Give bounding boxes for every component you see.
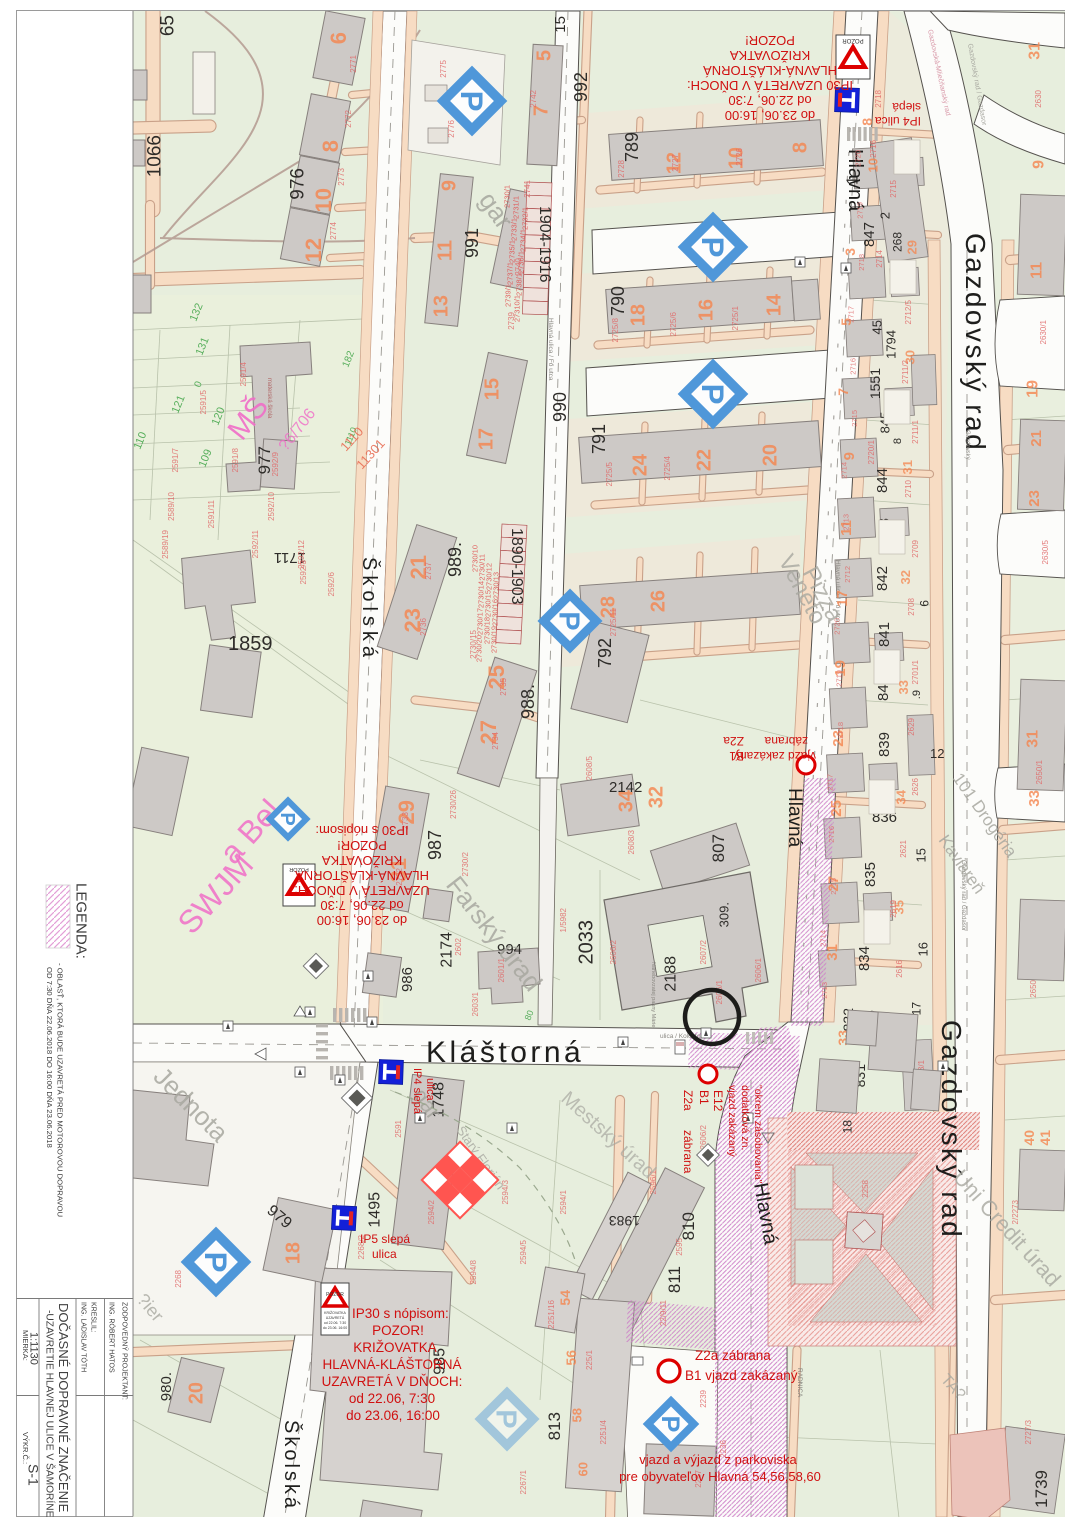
- svg-text:2258: 2258: [861, 1179, 870, 1197]
- svg-text:807: 807: [709, 834, 728, 862]
- svg-text:2710: 2710: [904, 479, 913, 497]
- svg-text:P: P: [490, 1409, 522, 1428]
- svg-text:2626: 2626: [911, 777, 920, 795]
- svg-text:792: 792: [595, 638, 615, 668]
- svg-text:1983: 1983: [609, 1213, 640, 1229]
- svg-text:vjazd zakázaný: vjazd zakázaný: [726, 1085, 738, 1158]
- svg-text:65: 65: [158, 15, 179, 36]
- svg-text:811: 811: [665, 1266, 684, 1293]
- svg-text:2630: 2630: [1034, 89, 1043, 107]
- svg-text:2717: 2717: [847, 306, 856, 323]
- svg-text:2251/4: 2251/4: [599, 1419, 608, 1444]
- svg-text:2742: 2742: [529, 89, 538, 107]
- svg-text:1890-1903: 1890-1903: [508, 528, 525, 605]
- svg-text:Z2a: Z2a: [723, 734, 744, 748]
- svg-text:2776: 2776: [447, 119, 456, 137]
- svg-text:22/9/11: 22/9/11: [659, 1299, 668, 1326]
- svg-text:2772: 2772: [344, 109, 353, 127]
- svg-text:slepá: slepá: [892, 100, 921, 114]
- svg-text:839: 839: [876, 732, 893, 757]
- svg-text:10: 10: [865, 158, 880, 172]
- svg-text:2594/8: 2594/8: [469, 1259, 478, 1284]
- svg-text:Školská: Školská: [358, 557, 381, 662]
- svg-text:309.: 309.: [716, 902, 731, 927]
- svg-text:986: 986: [399, 967, 416, 992]
- svg-text:789: 789: [622, 132, 642, 162]
- svg-text:pre obyvateľov Hlavná 54,56,58: pre obyvateľov Hlavná 54,56,58,60: [619, 1469, 821, 1484]
- svg-text:od 22.06. 7:30: od 22.06. 7:30: [324, 1321, 346, 1325]
- svg-text:2608/5: 2608/5: [585, 755, 594, 780]
- svg-text:10: 10: [311, 188, 336, 212]
- svg-text:18: 18: [841, 1120, 855, 1134]
- svg-text:ING. RÓBERT HATOS: ING. RÓBERT HATOS: [108, 1302, 117, 1373]
- svg-text:zábrana: zábrana: [764, 734, 808, 748]
- svg-text:2629: 2629: [907, 717, 916, 735]
- svg-text:2033: 2033: [575, 920, 597, 965]
- svg-text:2239: 2239: [699, 1389, 708, 1407]
- svg-text:2725/8: 2725/8: [611, 317, 620, 342]
- svg-text:2650/1: 2650/1: [1035, 759, 1044, 784]
- svg-text:2732/1: 2732/1: [520, 207, 529, 230]
- svg-text:22: 22: [693, 449, 715, 471]
- svg-text:29: 29: [905, 240, 920, 254]
- svg-text:1904-1916: 1904-1916: [536, 206, 553, 283]
- svg-text:B1 vjazd zakázaný: B1 vjazd zakázaný: [685, 1368, 798, 1383]
- svg-text:2736: 2736: [419, 617, 428, 635]
- svg-text:od 22.06, 7:30: od 22.06, 7:30: [728, 93, 811, 108]
- svg-text:UZAVRETÁ V DŇOCH:: UZAVRETÁ V DŇOCH:: [294, 883, 430, 898]
- svg-text:do 23.06. 16:00: do 23.06. 16:00: [323, 1326, 347, 1330]
- svg-text:P: P: [656, 1416, 684, 1433]
- svg-text:2741: 2741: [523, 179, 532, 197]
- svg-text:60: 60: [575, 1462, 590, 1476]
- svg-text:2716: 2716: [827, 826, 836, 843]
- svg-text:2715: 2715: [889, 179, 898, 197]
- svg-text:18: 18: [282, 1242, 304, 1264]
- svg-text:P: P: [276, 812, 298, 825]
- svg-text:2592/11: 2592/11: [251, 529, 260, 558]
- svg-text:8: 8: [892, 438, 904, 444]
- svg-text:POZOR!: POZOR!: [372, 1323, 424, 1338]
- svg-text:842: 842: [874, 566, 891, 591]
- svg-text:2188: 2188: [663, 956, 680, 992]
- svg-text:2738/1: 2738/1: [514, 273, 523, 296]
- svg-text:do 23.06, 16:00: do 23.06, 16:00: [317, 913, 407, 928]
- svg-text:2251/16: 2251/16: [547, 1299, 556, 1328]
- svg-text:P: P: [553, 611, 585, 630]
- svg-text:15: 15: [481, 378, 503, 400]
- svg-text:12: 12: [930, 746, 944, 761]
- svg-text:2591/8: 2591/8: [231, 447, 240, 472]
- svg-text:.9: .9: [911, 690, 923, 699]
- svg-text:POZOR!: POZOR!: [745, 33, 795, 48]
- svg-text:9: 9: [438, 180, 460, 191]
- svg-text:2734: 2734: [491, 731, 500, 749]
- svg-text:P: P: [198, 1252, 233, 1273]
- svg-text:2268: 2268: [174, 1269, 183, 1287]
- svg-text:Z2a zábrana: Z2a zábrana: [695, 1348, 771, 1363]
- svg-text:2621: 2621: [899, 839, 908, 857]
- svg-text:24: 24: [629, 453, 651, 476]
- svg-text:OD 7:30 DŇA 22.06.2018 DO 16:: OD 7:30 DŇA 22.06.2018 DO 16:00 DŇA 23.0…: [45, 967, 54, 1148]
- svg-text:20: 20: [759, 444, 781, 466]
- svg-text:2608/3: 2608/3: [627, 829, 636, 854]
- svg-text:2730/16: 2730/16: [490, 599, 499, 626]
- svg-text:2727: 2727: [671, 153, 680, 171]
- svg-text:2714: 2714: [840, 462, 849, 479]
- svg-text:19: 19: [1025, 380, 1042, 398]
- svg-text:POZOR!: POZOR!: [337, 838, 387, 853]
- svg-text:P: P: [695, 384, 730, 405]
- svg-text:34: 34: [615, 789, 637, 812]
- svg-text:HLAVNÁ-KLÁŠTORNÁ: HLAVNÁ-KLÁŠTORNÁ: [322, 1357, 461, 1372]
- svg-text:16: 16: [915, 942, 930, 956]
- svg-text:17: 17: [910, 1002, 924, 1016]
- svg-text:834: 834: [856, 946, 873, 971]
- svg-text:13: 13: [430, 295, 452, 317]
- svg-text:dodatková zn.: dodatková zn.: [739, 1085, 751, 1150]
- svg-text:31: 31: [900, 460, 915, 474]
- svg-text:do 23.06, 16:00: do 23.06, 16:00: [346, 1408, 440, 1423]
- svg-text:2739/1: 2739/1: [503, 284, 512, 307]
- svg-text:2602: 2602: [454, 937, 463, 955]
- svg-text:2717: 2717: [826, 774, 835, 791]
- svg-text:2267/1: 2267/1: [519, 1469, 528, 1494]
- svg-text:1794: 1794: [883, 330, 898, 359]
- svg-text:2603/1: 2603/1: [471, 991, 480, 1016]
- svg-text:2713: 2713: [841, 514, 850, 531]
- svg-text:-UZAVRETIE HLAVNEJ ULICE V ŠAM: -UZAVRETIE HLAVNEJ ULICE V ŠAMORÍNE: [44, 1310, 57, 1518]
- svg-text:2616: 2616: [895, 959, 904, 977]
- svg-text:17: 17: [475, 428, 497, 450]
- svg-text:2592/10: 2592/10: [267, 491, 276, 520]
- svg-text:34: 34: [894, 789, 909, 804]
- svg-text:2716: 2716: [848, 358, 857, 375]
- svg-text:2775: 2775: [439, 59, 448, 77]
- svg-text:25: 25: [828, 800, 845, 817]
- svg-text:2730/20: 2730/20: [474, 635, 483, 662]
- svg-text:E12: E12: [711, 1090, 725, 1112]
- svg-text:21: 21: [1028, 430, 1045, 447]
- svg-text:2715: 2715: [850, 410, 859, 427]
- svg-text:2594/2: 2594/2: [427, 1199, 436, 1224]
- svg-text:8: 8: [859, 118, 875, 126]
- svg-text:DOČASNÉ DOPRAVNÉ ZNAČENIE: DOČASNÉ DOPRAVNÉ ZNAČENIE: [56, 1303, 71, 1513]
- svg-text:2591/4: 2591/4: [239, 361, 248, 386]
- svg-text:225/1: 225/1: [585, 1349, 594, 1370]
- svg-text:2: 2: [877, 212, 892, 219]
- svg-text:988.: 988.: [518, 684, 538, 719]
- svg-text:2712: 2712: [843, 566, 852, 583]
- svg-text:992: 992: [571, 72, 591, 102]
- svg-text:990: 990: [550, 392, 570, 422]
- svg-text:1066: 1066: [145, 135, 166, 177]
- svg-text:2594/5: 2594/5: [519, 1239, 528, 1264]
- svg-text:UZAVRETÁ: UZAVRETÁ: [326, 1316, 345, 1320]
- svg-text:791: 791: [589, 424, 609, 454]
- svg-text:31: 31: [1027, 42, 1044, 60]
- svg-text:987: 987: [425, 830, 445, 860]
- svg-text:Z2a: Z2a: [681, 1090, 695, 1111]
- svg-text:2630/1: 2630/1: [1039, 319, 1048, 344]
- svg-text:2720/1: 2720/1: [867, 439, 876, 464]
- svg-text:2715: 2715: [829, 878, 838, 895]
- svg-text:IP4 slepá: IP4 slepá: [411, 1068, 423, 1115]
- svg-text:33: 33: [896, 680, 911, 694]
- svg-text:1739: 1739: [1032, 1470, 1051, 1508]
- svg-text:2619: 2619: [889, 899, 898, 917]
- svg-text:2711/1: 2711/1: [911, 419, 920, 443]
- svg-text:2718: 2718: [857, 254, 866, 271]
- svg-text:ZODPOVEDNÝ PROJEKTANT:: ZODPOVEDNÝ PROJEKTANT:: [121, 1302, 130, 1400]
- svg-text:2735/1: 2735/1: [507, 240, 516, 263]
- svg-text:2709: 2709: [911, 539, 920, 557]
- svg-text:ulica: ulica: [372, 1247, 397, 1261]
- svg-text:841: 841: [876, 622, 893, 647]
- svg-text:2714: 2714: [819, 930, 828, 947]
- svg-text:32: 32: [645, 786, 667, 808]
- svg-text:KRIŽOVATKA: KRIŽOVATKA: [729, 48, 810, 63]
- svg-text:2606/1: 2606/1: [754, 957, 763, 982]
- svg-text:2774: 2774: [329, 221, 338, 239]
- svg-text:S-1: S-1: [26, 1464, 42, 1486]
- svg-text:HLAVNÁ-KLÁŠTORNÁ: HLAVNÁ-KLÁŠTORNÁ: [295, 868, 429, 883]
- svg-text:2607/2: 2607/2: [699, 939, 708, 964]
- svg-text:Kláštorná: Kláštorná: [426, 1036, 584, 1069]
- svg-text:790: 790: [608, 286, 628, 316]
- svg-text:26: 26: [647, 590, 669, 612]
- svg-text:2726: 2726: [735, 147, 744, 165]
- svg-text:835: 835: [862, 862, 879, 887]
- svg-text:14: 14: [763, 293, 785, 316]
- svg-text:7: 7: [835, 388, 851, 396]
- svg-text:vjazd zakázaný: vjazd zakázaný: [734, 749, 816, 763]
- svg-text:2589/10: 2589/10: [167, 491, 176, 520]
- svg-text:2720: 2720: [854, 150, 863, 167]
- svg-text:41: 41: [1037, 1130, 1053, 1146]
- svg-text:5: 5: [533, 50, 555, 61]
- svg-text:2730/26: 2730/26: [449, 789, 458, 818]
- svg-text:2734/1: 2734/1: [518, 229, 527, 252]
- svg-text:IP30 UZAVRETÁ V DŇOCH:: IP30 UZAVRETÁ V DŇOCH:: [687, 78, 853, 93]
- svg-text:materská škola: materská škola: [266, 378, 272, 419]
- svg-text:2594/1: 2594/1: [559, 1189, 568, 1214]
- svg-text:2719: 2719: [834, 670, 843, 687]
- svg-text:2592/3: 2592/3: [299, 559, 308, 584]
- svg-text:2728: 2728: [617, 159, 626, 177]
- svg-text:do 23.06, 16:00: do 23.06, 16:00: [725, 108, 815, 123]
- svg-text:ING. LADISLAV TÓTH: ING. LADISLAV TÓTH: [80, 1302, 89, 1372]
- svg-text:20: 20: [185, 1382, 207, 1404]
- svg-text:2737: 2737: [424, 561, 433, 579]
- svg-text:976: 976: [288, 168, 309, 200]
- svg-text:Gazdovský rad: Gazdovský rad: [960, 233, 991, 452]
- svg-text:KRIŽOVATKA: KRIŽOVATKA: [353, 1340, 437, 1355]
- svg-text:989.: 989.: [445, 542, 465, 577]
- svg-text:2591/7: 2591/7: [171, 447, 180, 472]
- svg-text:40: 40: [1021, 1130, 1037, 1146]
- svg-text:2595: 2595: [675, 1237, 684, 1255]
- svg-text:UZAVRETÁ V DŇOCH:: UZAVRETÁ V DŇOCH:: [322, 1374, 463, 1389]
- svg-text:VÝKR.Č.:: VÝKR.Č.:: [21, 1432, 30, 1464]
- svg-text:1:1130: 1:1130: [28, 1332, 40, 1365]
- svg-text:P: P: [695, 237, 730, 258]
- svg-text:Hlavná: Hlavná: [784, 788, 805, 848]
- svg-text:11: 11: [1029, 262, 1046, 279]
- svg-text:2725/6: 2725/6: [669, 311, 678, 336]
- svg-text:2630/5: 2630/5: [1041, 539, 1050, 564]
- svg-text:2725/1: 2725/1: [731, 305, 740, 330]
- svg-text:vjazd a výjazd z parkoviska: vjazd a výjazd z parkoviska: [639, 1452, 797, 1467]
- svg-text:2708: 2708: [907, 597, 916, 615]
- svg-text:P: P: [454, 91, 489, 112]
- svg-text:IP30 s nópisom:: IP30 s nópisom:: [352, 1306, 449, 1321]
- svg-text:11: 11: [434, 240, 456, 261]
- svg-text:B1: B1: [729, 749, 744, 763]
- svg-text:Školská: Školská: [280, 1420, 303, 1511]
- svg-text:KRIŽOVATKA: KRIŽOVATKA: [321, 853, 402, 868]
- svg-text:6: 6: [918, 600, 932, 607]
- svg-text:58: 58: [569, 1408, 584, 1422]
- svg-text:2592/6: 2592/6: [327, 571, 336, 596]
- svg-text:2771: 2771: [349, 54, 358, 72]
- svg-text:1551: 1551: [867, 368, 883, 399]
- svg-text:8: 8: [318, 140, 343, 152]
- svg-text:2735: 2735: [499, 677, 508, 695]
- svg-text:2713: 2713: [820, 982, 829, 999]
- svg-text:zábrana: zábrana: [681, 1130, 695, 1174]
- svg-text:2591: 2591: [394, 1119, 403, 1137]
- svg-text:POZOR: POZOR: [842, 37, 864, 43]
- svg-text:27310/1: 27310/1: [512, 295, 521, 322]
- svg-text:6: 6: [326, 32, 351, 44]
- svg-text:31: 31: [1025, 730, 1042, 748]
- svg-text:2650: 2650: [1029, 979, 1038, 997]
- svg-text:2736/1: 2736/1: [516, 251, 525, 274]
- svg-text:ulica: ulica: [424, 1078, 436, 1102]
- svg-text:9: 9: [1031, 160, 1048, 169]
- svg-text:2606/2: 2606/2: [609, 939, 618, 964]
- svg-text:2716: 2716: [869, 139, 878, 157]
- svg-text:45: 45: [869, 320, 884, 334]
- svg-text:2730/13: 2730/13: [491, 572, 500, 599]
- svg-text:2737/1: 2737/1: [505, 262, 514, 285]
- svg-text:Gazdovský rad: Gazdovský rad: [936, 1020, 967, 1239]
- svg-text:54: 54: [557, 1290, 573, 1306]
- svg-text:15: 15: [913, 848, 928, 862]
- svg-text:56: 56: [563, 1350, 579, 1366]
- svg-text:810: 810: [679, 1212, 698, 1240]
- svg-text:od 22.06, 7:30: od 22.06, 7:30: [349, 1391, 435, 1406]
- svg-text:2773: 2773: [337, 167, 346, 185]
- svg-text:1/5982: 1/5982: [559, 907, 568, 932]
- svg-text:Gazdovský: Gazdovský: [964, 430, 970, 460]
- svg-text:9: 9: [841, 452, 858, 460]
- svg-text:B1: B1: [697, 1090, 711, 1105]
- svg-text:3: 3: [842, 248, 858, 256]
- svg-text:2714: 2714: [875, 249, 884, 267]
- svg-text:12: 12: [301, 238, 326, 262]
- svg-text:844: 844: [874, 468, 891, 493]
- svg-text:33: 33: [1026, 790, 1043, 807]
- svg-text:2591/5: 2591/5: [199, 389, 208, 414]
- svg-text:1859: 1859: [228, 633, 273, 655]
- svg-text:18: 18: [627, 304, 649, 326]
- svg-text:POZOR: POZOR: [326, 1292, 344, 1298]
- svg-text:2592/9: 2592/9: [271, 451, 280, 476]
- svg-text:32: 32: [898, 570, 913, 584]
- svg-text:Hlavná ulica / Fő utca: Hlavná ulica / Fő utca: [547, 318, 554, 381]
- svg-text:IP4 ulica: IP4 ulica: [875, 114, 921, 128]
- svg-text:15: 15: [552, 16, 569, 33]
- svg-text:2725/5: 2725/5: [605, 461, 614, 486]
- svg-text:268: 268: [891, 232, 905, 252]
- svg-text:23: 23: [1026, 490, 1043, 507]
- svg-text:8: 8: [789, 142, 811, 153]
- svg-text:- OBLASŤ, KTORÁ BUDE UZAVRETÁ: - OBLASŤ, KTORÁ BUDE UZAVRETÁ PRED MOTOR…: [56, 963, 65, 1217]
- svg-text:2589/19: 2589/19: [161, 529, 170, 558]
- svg-text:IP30 s nópisom:: IP30 s nópisom:: [315, 823, 408, 838]
- svg-text:980.: 980.: [158, 1372, 175, 1401]
- svg-text:2730/19: 2730/19: [489, 626, 498, 653]
- svg-text:2725/4: 2725/4: [663, 455, 672, 480]
- svg-text:LEGENDA:: LEGENDA:: [73, 883, 90, 959]
- svg-text:991: 991: [462, 228, 482, 258]
- svg-text:2727/3: 2727/3: [1024, 1419, 1033, 1444]
- svg-text:IP5 slepá: IP5 slepá: [360, 1232, 410, 1246]
- svg-text:Nanebovzatej panny Márie: Nanebovzatej panny Márie: [650, 962, 656, 1027]
- svg-text:KRIŽOVATKA: KRIŽOVATKA: [324, 1310, 346, 1315]
- svg-text:2591/11: 2591/11: [207, 499, 216, 528]
- svg-text:1495: 1495: [367, 1192, 384, 1228]
- svg-text:2711/2: 2711/2: [901, 359, 910, 383]
- svg-text:2718: 2718: [836, 722, 845, 739]
- svg-text:847: 847: [861, 222, 878, 247]
- svg-text:2718: 2718: [874, 89, 883, 107]
- svg-text:od 22.06, 7:30: od 22.06, 7:30: [320, 898, 403, 913]
- svg-text:16: 16: [695, 299, 717, 321]
- svg-text:KRESLIL:: KRESLIL:: [90, 1302, 97, 1333]
- svg-text:2712/5: 2712/5: [904, 299, 913, 324]
- svg-text:HLAVNÁ-KLÁŠTORNÁ: HLAVNÁ-KLÁŠTORNÁ: [703, 63, 837, 78]
- svg-text:"okrem zásobovania": "okrem zásobovania": [752, 1085, 764, 1184]
- svg-text:2725/11: 2725/11: [609, 607, 618, 636]
- svg-text:813: 813: [545, 1412, 564, 1440]
- svg-text:2701/1: 2701/1: [911, 659, 920, 684]
- svg-text:2719: 2719: [855, 202, 864, 219]
